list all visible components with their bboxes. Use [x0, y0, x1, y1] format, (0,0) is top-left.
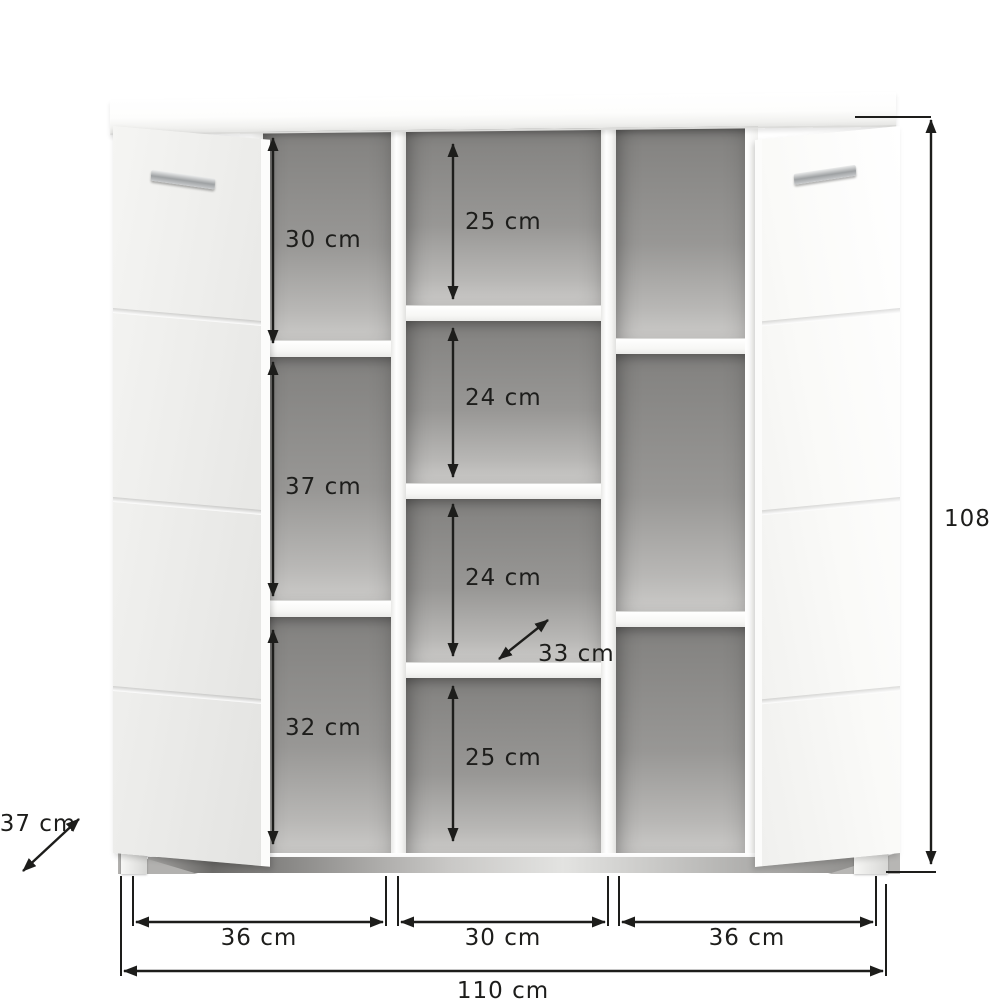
shelf-cell: [406, 499, 602, 662]
left-door-open: [113, 126, 270, 867]
interior-shelf: [406, 662, 602, 679]
shelf-cell: [262, 357, 392, 600]
vertical-divider: [391, 128, 406, 868]
door-seam: [762, 686, 900, 704]
interior-shelf: [262, 340, 392, 358]
dim-label-width-middle: 30 cm: [465, 925, 542, 951]
product-dimension-diagram: 30 cm 37 cm 32 cm 25 cm 24 cm 24 cm 25 c…: [0, 0, 1000, 1000]
shelf-cell: [262, 617, 392, 853]
door-handle-left: [151, 170, 215, 190]
interior-shelf: [406, 305, 602, 322]
right-door-open: [755, 126, 900, 867]
dim-label-depth: 37 cm: [0, 811, 76, 837]
interior-shelf: [262, 600, 392, 618]
door-handle-right: [794, 165, 856, 185]
shelf-cell: [406, 321, 602, 483]
shelf-cell: [616, 128, 746, 338]
dim-label-total-width: 110 cm: [457, 978, 549, 1000]
door-seam: [762, 308, 900, 326]
door-seam: [113, 308, 261, 326]
shelf-cell: [406, 128, 602, 305]
dim-label-width-right: 36 cm: [709, 925, 786, 951]
shelf-cell: [406, 678, 602, 853]
door-seam: [113, 686, 261, 704]
cabinet-top-panel: [110, 92, 896, 135]
dim-label-height: 108 c: [944, 506, 1000, 532]
dim-label-width-left: 36 cm: [221, 925, 298, 951]
interior-shelf: [616, 611, 746, 628]
shelf-cell: [616, 627, 746, 853]
door-seam: [113, 497, 261, 515]
door-seam: [762, 497, 900, 515]
shelf-cell: [262, 128, 392, 340]
interior-shelf: [406, 483, 602, 500]
dim-arrow-depth: [23, 819, 79, 871]
interior-shelf: [616, 338, 746, 355]
shelf-cell: [616, 354, 746, 611]
vertical-divider: [601, 128, 616, 868]
